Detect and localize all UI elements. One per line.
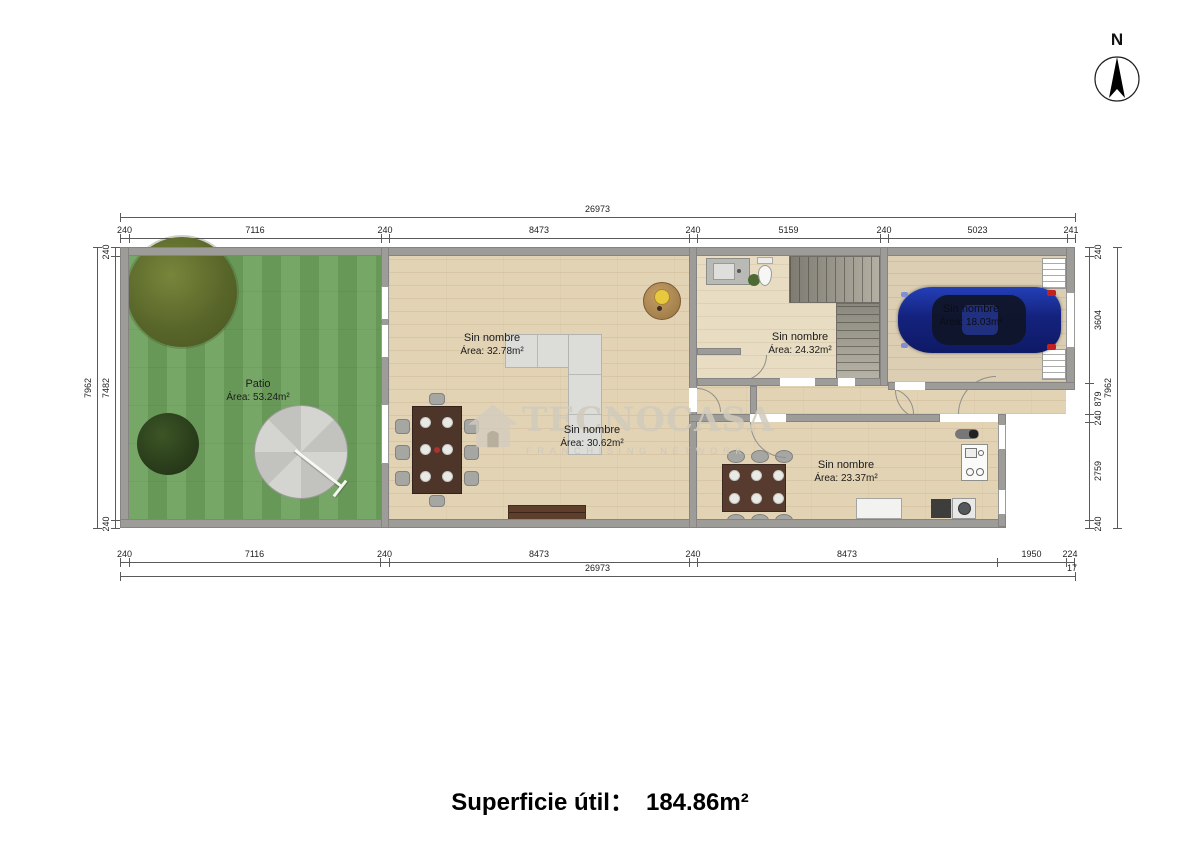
chair (464, 445, 479, 460)
table-lamp (654, 289, 670, 305)
window (381, 286, 389, 320)
wall-corridor-stub (750, 386, 757, 414)
dimension-line (120, 576, 1075, 577)
dimension-label: 879 (1093, 391, 1103, 406)
chair (727, 450, 745, 463)
dimension-label: 240 (685, 225, 700, 235)
dimension-tick (697, 558, 698, 567)
faucet-dot (737, 269, 741, 273)
dimension-tick (1075, 572, 1076, 581)
dimension-label: 7482 (101, 378, 111, 398)
dimension-label: 8473 (837, 549, 857, 559)
room-name: Sin nombre (768, 331, 831, 345)
burner (966, 468, 974, 476)
kitchen-unit (961, 444, 988, 481)
plate (442, 417, 453, 428)
dimension-tick (120, 572, 121, 581)
dimension-label: 240 (377, 225, 392, 235)
dimension-label: 2759 (1093, 461, 1103, 481)
dimension-tick (689, 558, 690, 567)
burner (976, 468, 984, 476)
dimension-tick (1113, 528, 1122, 529)
plate (442, 471, 453, 482)
wall-garage-hall (880, 247, 888, 386)
dimension-label: 7962 (83, 377, 93, 397)
room-label-garage: Sin nombre Área: 18.03m² (939, 303, 1002, 329)
wall-kitchen-top (689, 414, 940, 422)
wall-outer-left (120, 247, 129, 528)
window (998, 489, 1006, 515)
dimension-tick (1075, 234, 1076, 243)
compass-icon (1094, 50, 1140, 108)
caption: Superficie útil： 184.86m² (0, 782, 1200, 817)
room-label-living-upper: Sin nombre Área: 32.78m² (460, 332, 523, 358)
dimension-label: 240 (101, 516, 111, 531)
kitchen-cabinet (856, 498, 902, 519)
dimension-label: 240 (117, 549, 132, 559)
dimension-label: 241 (1063, 225, 1078, 235)
doorway (838, 378, 855, 386)
dimension-tick (880, 234, 881, 243)
north-compass: N (1093, 30, 1141, 112)
doorway (750, 414, 786, 422)
room-area: Área: 23.37m² (814, 473, 877, 486)
garage-door-panel-bottom (1042, 349, 1066, 380)
dimension-label: 240 (377, 549, 392, 559)
dimension-label: 8473 (529, 549, 549, 559)
room-label-hall: Sin nombre Área: 24.32m² (768, 331, 831, 357)
dimension-label: 26973 (585, 563, 610, 573)
dimension-line (120, 238, 1075, 239)
dimension-label: 240 (117, 225, 132, 235)
dimension-label: 1950 (1021, 549, 1041, 559)
plate (751, 470, 762, 481)
dimension-label: 240 (685, 549, 700, 559)
window (998, 424, 1006, 450)
dimension-tick (1075, 213, 1076, 222)
table-centerpiece (434, 447, 440, 453)
dimension-tick (389, 558, 390, 567)
plate (729, 470, 740, 481)
room-label-patio: Patio Área: 53.24m² (226, 378, 289, 404)
caption-label: Superficie útil： (451, 782, 634, 817)
dimension-label: 5023 (967, 225, 987, 235)
dimension-tick (389, 234, 390, 243)
car-taillight (1047, 344, 1056, 350)
washer-drum (958, 502, 971, 515)
chair (429, 393, 445, 405)
dimension-label: 240 (1093, 244, 1103, 259)
washing-machine (952, 498, 976, 519)
dimension-tick (129, 234, 130, 243)
room-label-kitchen: Sin nombre Área: 23.37m² (814, 459, 877, 485)
dimension-tick (1085, 383, 1094, 384)
dimension-tick (888, 234, 889, 243)
dimension-tick (120, 213, 121, 222)
dimension-label: 5159 (778, 225, 798, 235)
faucet-head (969, 430, 978, 438)
room-area: Área: 53.24m² (226, 392, 289, 405)
kitchen-sink (965, 448, 977, 458)
dimension-tick (111, 520, 120, 521)
garage-door-opening (1066, 292, 1075, 348)
plate (420, 444, 431, 455)
patio-door (381, 404, 389, 464)
stairs-lower-flight (836, 303, 880, 380)
doorway (895, 382, 925, 390)
dimension-label: 3604 (1093, 309, 1103, 329)
dimension-label: 240 (101, 244, 111, 259)
dimension-line (1117, 247, 1118, 528)
plate (773, 470, 784, 481)
dimension-label: 7116 (245, 225, 264, 235)
dimension-label: 240 (876, 225, 891, 235)
room-name: Sin nombre (460, 332, 523, 346)
room-area: Área: 24.32m² (768, 345, 831, 358)
north-label: N (1093, 30, 1141, 50)
caption-value: 184.86m² (646, 789, 749, 817)
dimension-tick (380, 558, 381, 567)
room-area: Área: 30.62m² (560, 438, 623, 451)
dimension-label: 240 (1093, 410, 1103, 425)
car-headlight (901, 343, 908, 348)
chair (464, 471, 479, 486)
plate (420, 471, 431, 482)
dimension-label: 7962 (1103, 377, 1113, 397)
wall-outer-top (120, 247, 1075, 256)
dimension-label: 26973 (585, 204, 610, 214)
tv-stand (508, 505, 586, 520)
dimension-label: 8473 (529, 225, 549, 235)
room-area: Área: 32.78m² (460, 346, 523, 359)
side-table (643, 282, 681, 320)
plate (729, 493, 740, 504)
doorway (689, 388, 697, 412)
sink (713, 263, 735, 280)
dimension-tick (93, 247, 102, 248)
floorplan-page: N (0, 0, 1200, 850)
dimension-tick (689, 234, 690, 243)
wall-outer-bottom (120, 519, 1006, 528)
dimension-tick (120, 234, 121, 243)
dimension-tick (111, 528, 120, 529)
room-area: Área: 18.03m² (939, 317, 1002, 330)
plate (442, 444, 453, 455)
plate (773, 493, 784, 504)
dimension-label: 7116 (245, 549, 264, 559)
plate (420, 417, 431, 428)
kitchen-faucet (955, 429, 979, 439)
small-bush (137, 413, 199, 475)
room-label-living-lower: Sin nombre Área: 30.62m² (560, 424, 623, 450)
room-name: Sin nombre (814, 459, 877, 473)
dimension-tick (1113, 247, 1122, 248)
room-name: Sin nombre (560, 424, 623, 438)
burner (978, 450, 984, 456)
dimension-tick (111, 247, 120, 248)
window (381, 324, 389, 358)
dimension-tick (381, 234, 382, 243)
chair (395, 419, 410, 434)
dimension-tick (997, 558, 998, 567)
dimension-line (120, 217, 1075, 218)
dimension-line (1089, 247, 1090, 528)
table-decor (657, 306, 662, 311)
toilet-tank (757, 257, 773, 264)
car-headlight (901, 292, 908, 297)
room-name: Sin nombre (939, 303, 1002, 317)
chair (395, 471, 410, 486)
dimension-label: 17 (1067, 563, 1077, 573)
room-name: Patio (226, 378, 289, 392)
dimension-line (115, 247, 116, 528)
dimension-tick (93, 528, 102, 529)
dimension-tick (697, 234, 698, 243)
stove-block (931, 499, 951, 518)
garage-door-panel-top (1042, 258, 1066, 289)
wall-bathroom-stub (697, 348, 741, 355)
bathroom-vanity (706, 258, 750, 285)
entry-doorway (940, 414, 998, 422)
car-taillight (1047, 290, 1056, 296)
plate (751, 493, 762, 504)
dimension-tick (129, 558, 130, 567)
dimension-tick (120, 558, 121, 567)
stairs-upper-flight (789, 256, 880, 303)
dimension-label: 240 (1093, 516, 1103, 531)
chair (429, 495, 445, 507)
chair (395, 445, 410, 460)
dimension-line (97, 247, 98, 528)
doorway (780, 378, 815, 386)
dimension-label: 224 (1062, 549, 1077, 559)
dimension-tick (111, 256, 120, 257)
dimension-tick (1067, 234, 1068, 243)
chair (464, 419, 479, 434)
